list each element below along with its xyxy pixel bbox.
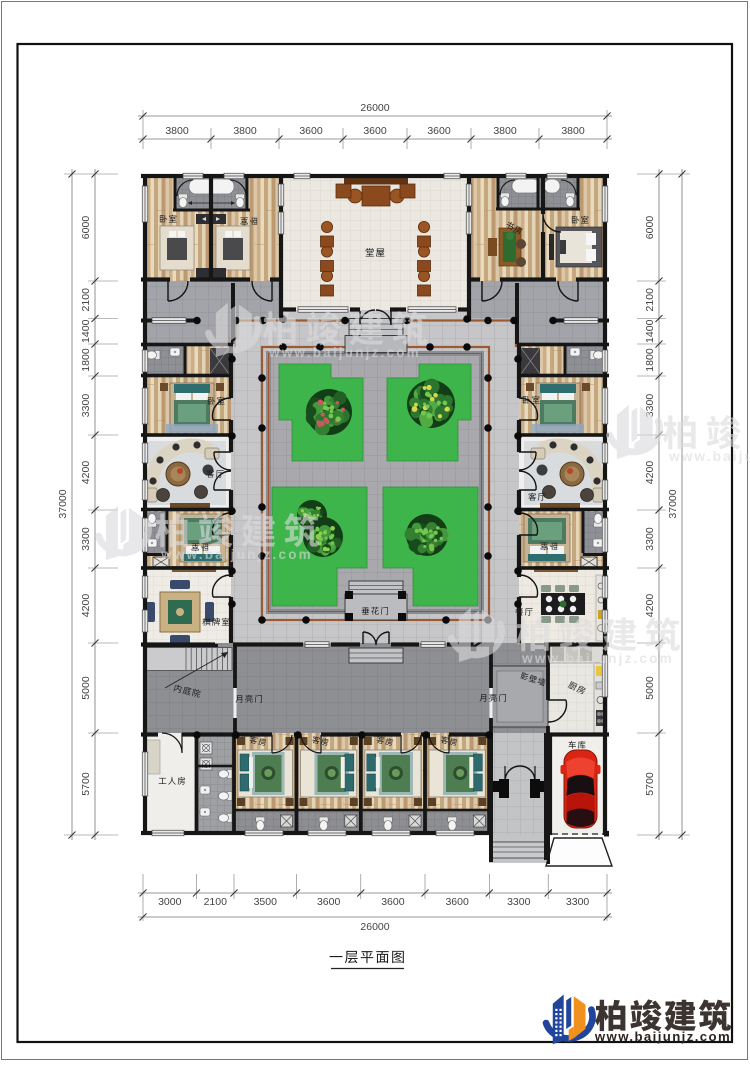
svg-text:3500: 3500	[254, 896, 278, 908]
svg-text:3600: 3600	[427, 125, 451, 137]
svg-text:3300: 3300	[507, 896, 531, 908]
svg-text:www.baijunjz.com: www.baijunjz.com	[521, 651, 674, 666]
svg-text:www.baijunjz.com: www.baijunjz.com	[668, 449, 750, 464]
svg-text:5700: 5700	[80, 772, 92, 796]
svg-text:5000: 5000	[80, 676, 92, 700]
svg-text:37000: 37000	[667, 489, 679, 518]
svg-text:4200: 4200	[80, 461, 92, 485]
svg-text:1400: 1400	[644, 319, 656, 343]
svg-text:3600: 3600	[381, 896, 405, 908]
svg-text:5700: 5700	[644, 772, 656, 796]
svg-text:3800: 3800	[561, 125, 585, 137]
svg-text:3800: 3800	[493, 125, 517, 137]
svg-text:6000: 6000	[80, 216, 92, 240]
svg-text:www.baijunjz.com: www.baijunjz.com	[268, 345, 421, 360]
svg-text:4200: 4200	[644, 461, 656, 485]
svg-text:26000: 26000	[360, 921, 389, 933]
svg-text:37000: 37000	[57, 489, 69, 518]
svg-text:4200: 4200	[80, 594, 92, 618]
svg-text:3000: 3000	[158, 896, 182, 908]
svg-text:1800: 1800	[80, 348, 92, 372]
svg-text:3600: 3600	[445, 896, 469, 908]
svg-text:3600: 3600	[363, 125, 387, 137]
svg-text:3300: 3300	[566, 896, 590, 908]
svg-text:www.baijunjz.com: www.baijunjz.com	[594, 1029, 731, 1044]
svg-text:3600: 3600	[317, 896, 341, 908]
svg-text:5000: 5000	[644, 676, 656, 700]
svg-text:2100: 2100	[644, 288, 656, 312]
svg-text:2100: 2100	[80, 288, 92, 312]
svg-text:3800: 3800	[233, 125, 257, 137]
svg-text:2100: 2100	[204, 896, 228, 908]
svg-text:1400: 1400	[80, 319, 92, 343]
svg-text:1800: 1800	[644, 348, 656, 372]
svg-text:3300: 3300	[644, 527, 656, 551]
svg-text:www.baijunjz.com: www.baijunjz.com	[160, 547, 313, 562]
svg-text:3600: 3600	[299, 125, 323, 137]
svg-text:26000: 26000	[360, 102, 389, 114]
svg-text:3800: 3800	[165, 125, 189, 137]
svg-text:4200: 4200	[644, 594, 656, 618]
svg-text:6000: 6000	[644, 216, 656, 240]
svg-text:3300: 3300	[80, 527, 92, 551]
svg-text:3300: 3300	[80, 394, 92, 418]
